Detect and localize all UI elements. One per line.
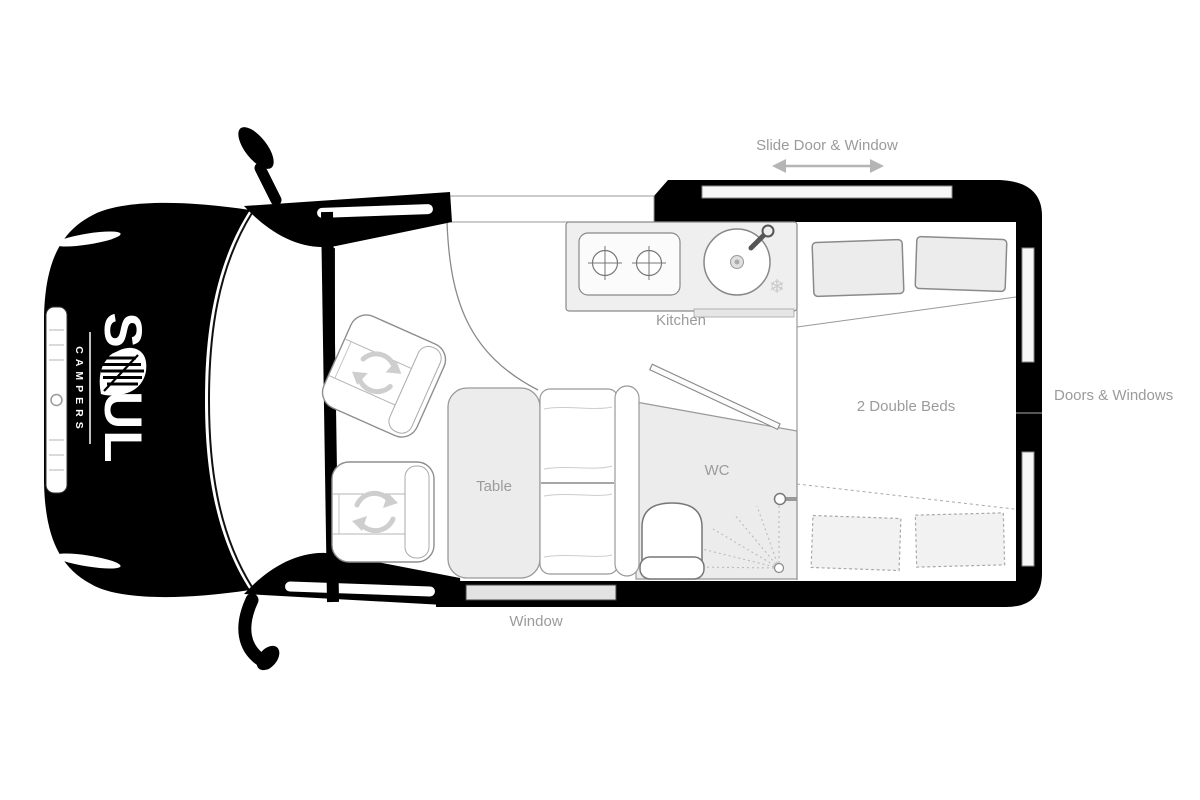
- sink-drain-hole: [735, 260, 740, 265]
- fridge-snowflake-icon: ❄: [769, 277, 785, 298]
- van-floor-plan: ❄ Kitchen WC Table: [0, 0, 1200, 800]
- brand-tagline: CAMPERS: [73, 346, 85, 434]
- pillow: [915, 236, 1007, 291]
- pillow: [812, 239, 904, 296]
- cab-opening: [446, 196, 654, 222]
- slide-door-label: Slide Door & Window: [756, 137, 898, 154]
- front-grille: [46, 307, 67, 493]
- bench-backrest: [615, 386, 639, 576]
- beds-label: 2 Double Beds: [857, 398, 955, 415]
- folded-bed-pillow: [915, 513, 1004, 567]
- bottom-window-slot: [466, 585, 616, 600]
- bench-seat: [540, 386, 639, 576]
- rear-door-window-top-slot: [1022, 248, 1034, 362]
- window-label: Window: [509, 613, 563, 630]
- folded-bed-pillow: [811, 515, 901, 570]
- toilet: [640, 503, 704, 579]
- slide-door-window-slot: [702, 186, 952, 198]
- driver-seat: [332, 462, 434, 562]
- doors-windows-label: Doors & Windows: [1054, 387, 1173, 404]
- rear-door-window-bottom-slot: [1022, 452, 1034, 566]
- wc-label: WC: [705, 462, 730, 479]
- windshield: [209, 213, 334, 587]
- kitchen-counter-ledge: [694, 309, 794, 317]
- wc-door-pivot: [775, 564, 784, 573]
- table-label: Table: [476, 478, 512, 495]
- kitchen-label: Kitchen: [656, 312, 706, 329]
